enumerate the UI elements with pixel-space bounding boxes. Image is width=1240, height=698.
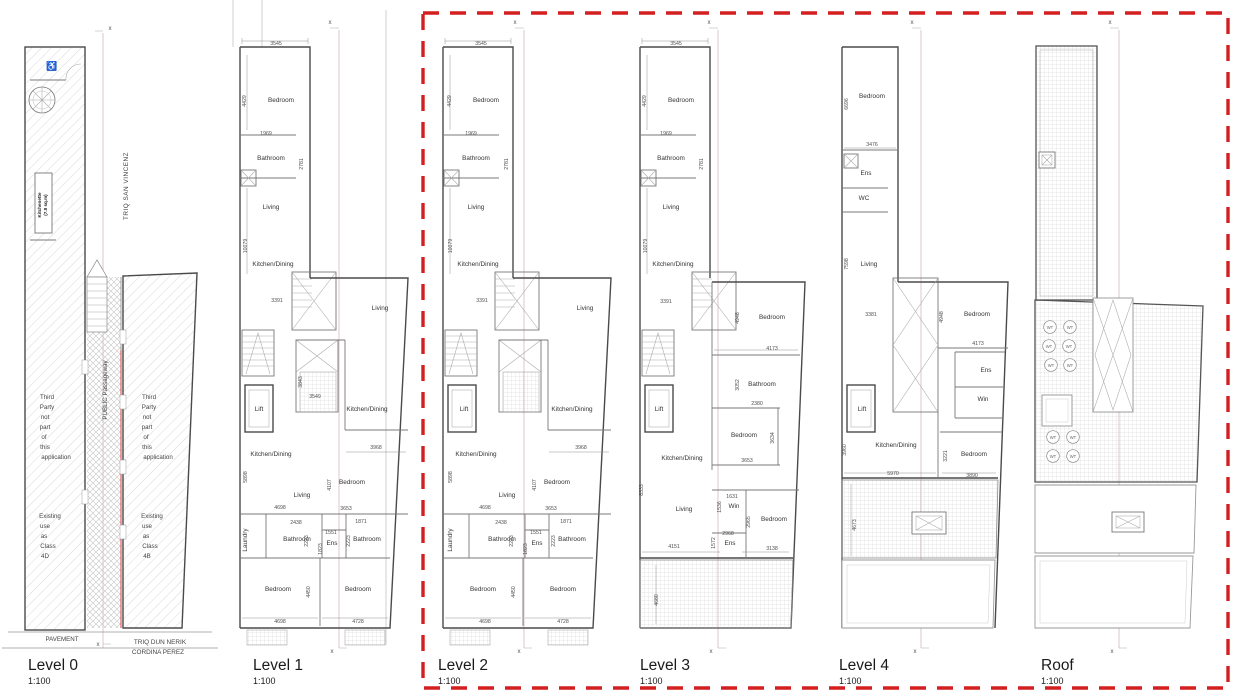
room-label: Bedroom (759, 314, 785, 321)
dimension-label: 3391 (476, 298, 488, 304)
dimension-label: application (143, 454, 173, 461)
dimension-label: not (41, 414, 50, 421)
plan-scale-text: 1:100 (253, 676, 303, 686)
drawing-canvas: x♿Kitchenette(7.8 sq.m)TRIQ SAN VINCENZT… (0, 0, 1240, 698)
dimension-label: part (142, 424, 153, 431)
dimension-label: 2223 (551, 535, 557, 547)
room-label: Kitchen/Dining (652, 261, 694, 268)
dimension-label: 3890 (966, 473, 978, 479)
room-label: Bedroom (859, 93, 885, 100)
plan-scale-text: 1:100 (28, 676, 78, 686)
room-label: Bedroom (961, 451, 987, 458)
room-label: Ens (860, 170, 871, 177)
room-label: Living (468, 204, 485, 211)
dimension-label: 2223 (304, 535, 310, 547)
dimension-label: 4429 (242, 95, 248, 107)
plan-title-text: Roof (1041, 657, 1074, 675)
dimension-label: 1871 (560, 519, 572, 525)
dimension-label: 4450 (306, 586, 312, 598)
dimension-label: 2781 (699, 158, 705, 170)
dimension-label: this (142, 444, 152, 451)
section-marker: x (913, 648, 917, 655)
room-label: WC (859, 195, 870, 202)
level-0-plan: x♿Kitchenette(7.8 sq.m)TRIQ SAN VINCENZT… (2, 25, 218, 656)
dimension-label: 5898 (243, 471, 249, 483)
plan-title-text: Level 0 (28, 657, 78, 675)
plan-scale-text: 1:100 (640, 676, 690, 686)
dimension-label: 4151 (668, 544, 680, 550)
room-label: Bathroom (657, 155, 685, 162)
plan-title-text: Level 2 (438, 657, 488, 675)
dimension-label: 4698 (274, 505, 286, 511)
dimension-label: 3843 (298, 376, 304, 388)
room-label: Laundry (447, 528, 454, 552)
room-label: Living (499, 492, 516, 499)
dimension-label: PAVEMENT (45, 636, 78, 643)
dimension-label: 10079 (448, 239, 454, 254)
room-label: Bathroom (462, 155, 490, 162)
dimension-label: Existing (141, 513, 163, 520)
level-1-title: Level 1 1:100 (253, 657, 303, 686)
dimension-label: 3221 (943, 450, 949, 462)
section-marker: x (96, 641, 100, 648)
level-4-plan: x6696Bedroom3476EnsWC7598Living33814948B… (842, 19, 1008, 655)
dimension-label: 10079 (243, 239, 249, 254)
plan-title-text: Level 4 (839, 657, 889, 675)
dimension-label: 1631 (726, 494, 738, 500)
water-tank-label: WT (1050, 435, 1057, 440)
room-label: Kitchen/Dining (252, 261, 294, 268)
dimension-label: 7598 (844, 258, 850, 270)
dimension-label: of (41, 434, 46, 441)
room-label: Bedroom (550, 586, 576, 593)
dimension-label: 4173 (766, 346, 778, 352)
dimension-label: use (142, 523, 153, 530)
room-label: Bathroom (257, 155, 285, 162)
room-label: Bedroom (544, 479, 570, 486)
dimension-label: 1572 (711, 537, 717, 549)
room-label: Living (577, 305, 594, 312)
water-tank-label: WT (1067, 363, 1074, 368)
street-name: CORDINA PEREZ (132, 649, 184, 656)
dimension-label: 4B (143, 553, 151, 560)
section-marker: x (108, 25, 112, 32)
dimension-label: 2438 (495, 520, 507, 526)
level-2-title: Level 2 1:100 (438, 657, 488, 686)
dimension-label: Existing (39, 513, 61, 520)
dimension-label: 3968 (575, 445, 587, 451)
dimension-label: 3545 (670, 41, 682, 47)
dimension-label: 5970 (887, 471, 899, 477)
dimension-label: 3052 (735, 379, 741, 391)
dimension-label: 3391 (271, 298, 283, 304)
dimension-label: 5898 (448, 471, 454, 483)
level-3-title: Level 3 1:100 (640, 657, 690, 686)
dimension-label: 4728 (352, 619, 364, 625)
section-marker: x (910, 19, 914, 26)
dimension-label: 1969 (660, 131, 672, 137)
room-label: Kitchen/Dining (455, 451, 497, 458)
dimension-label: 1551 (325, 530, 337, 536)
dimension-label: part (40, 424, 51, 431)
dimension-label: 4698 (274, 619, 286, 625)
dimension-label: 6696 (844, 98, 850, 110)
section-marker: x (328, 19, 332, 26)
dimension-label: Class (142, 543, 157, 550)
accessible-icon: ♿ (46, 60, 57, 71)
dimension-label: use (40, 523, 51, 530)
level-2-plan: x35454429Bedroom1969Bathroom2781Living10… (443, 19, 611, 655)
room-label: Bedroom (473, 97, 499, 104)
dimension-label: 1823 (523, 543, 529, 555)
room-label: Living (294, 492, 311, 499)
dimension-label: Class (40, 543, 55, 550)
dimension-label: 3653 (741, 458, 753, 464)
section-marker: x (709, 648, 713, 655)
dimension-label: 3968 (370, 445, 382, 451)
room-label: Lift (655, 406, 664, 413)
level-0-title: Level 0 1:100 (28, 657, 78, 686)
dimension-label: 3381 (865, 312, 877, 318)
dimension-label: 3653 (340, 506, 352, 512)
section-marker: x (330, 648, 334, 655)
dimension-label: 4107 (327, 479, 333, 491)
dimension-label: 4728 (557, 619, 569, 625)
dimension-label: 4680 (654, 594, 660, 606)
dimension-label: as (41, 533, 48, 540)
dimension-label: 3391 (660, 299, 672, 305)
room-label: Lift (460, 406, 469, 413)
dimension-label: Party (142, 404, 157, 411)
dimension-label: 1969 (465, 131, 477, 137)
room-label: Kitchen/Dining (457, 261, 499, 268)
dimension-label: of (143, 434, 148, 441)
room-label: Lift (858, 406, 867, 413)
room-label: Living (372, 305, 389, 312)
dimension-label: 2968 (722, 531, 734, 537)
dimension-label: Party (40, 404, 55, 411)
dimension-label: 4173 (972, 341, 984, 347)
roof-title: Roof 1:100 (1041, 657, 1074, 686)
section-marker: x (1108, 19, 1112, 26)
plan-scale-text: 1:100 (839, 676, 889, 686)
room-label: Lift (255, 406, 264, 413)
dimension-label: 2438 (290, 520, 302, 526)
plan-title-text: Level 3 (640, 657, 690, 675)
water-tank-label: WT (1067, 325, 1074, 330)
room-label: Bedroom (761, 516, 787, 523)
dimension-label: 4107 (532, 479, 538, 491)
dimension-label: 3138 (766, 546, 778, 552)
room-label: Laundry (242, 528, 249, 552)
dimension-label: 3653 (545, 506, 557, 512)
dimension-label: (7.8 sq.m) (43, 194, 48, 216)
room-label: Bedroom (964, 311, 990, 318)
dimension-label: 1969 (260, 131, 272, 137)
water-tank-label: WT (1070, 435, 1077, 440)
level-3-plan: x35454429Bedroom1969Bathroom2781Living10… (639, 19, 805, 655)
dimension-label: 2781 (299, 158, 305, 170)
water-tank-label: WT (1050, 454, 1057, 459)
section-marker: x (513, 19, 517, 26)
room-label: Bedroom (268, 97, 294, 104)
room-label: Bathroom (353, 536, 381, 543)
dimension-label: 2223 (509, 535, 515, 547)
dimension-label: 1551 (530, 530, 542, 536)
room-label: Kitchen/Dining (346, 406, 388, 413)
room-label: Bedroom (339, 479, 365, 486)
dimension-label: 3634 (770, 432, 776, 444)
room-label: Bathroom (748, 381, 776, 388)
room-label: Bathroom (558, 536, 586, 543)
room-label: Living (263, 204, 280, 211)
section-marker: x (517, 648, 521, 655)
level-4-title: Level 4 1:100 (839, 657, 889, 686)
dimension-label: 3545 (475, 41, 487, 47)
room-label: Ens (531, 540, 542, 547)
dimension-label: 2781 (504, 158, 510, 170)
water-tank-label: WT (1070, 454, 1077, 459)
room-label: Living (861, 261, 878, 268)
room-label: Kitchen/Dining (250, 451, 292, 458)
room-label: Bedroom (345, 586, 371, 593)
dimension-label: 4948 (735, 312, 741, 324)
room-label: Ens (724, 540, 735, 547)
dimension-label: Third (142, 394, 157, 401)
dimension-label: PUBLIC Passageway (102, 360, 109, 420)
dimension-label: 3545 (270, 41, 282, 47)
dimension-label: application (41, 454, 71, 461)
plan-scale-text: 1:100 (1041, 676, 1074, 686)
room-label: Win (977, 396, 988, 403)
room-label: Bedroom (470, 586, 496, 593)
water-tank-label: WT (1047, 325, 1054, 330)
dimension-label: 10079 (643, 239, 649, 254)
dimension-label: 8333 (639, 484, 645, 496)
room-label: Ens (980, 367, 991, 374)
dimension-label: as (143, 533, 150, 540)
dimension-label: 4673 (852, 519, 858, 531)
dimension-label: 2223 (346, 535, 352, 547)
dimension-label: 1536 (717, 501, 723, 513)
water-tank-label: WT (1066, 344, 1073, 349)
room-label: Living (676, 506, 693, 513)
dimension-label: 4698 (479, 505, 491, 511)
room-label: Bedroom (731, 432, 757, 439)
room-label: Bedroom (265, 586, 291, 593)
dimension-label: 1823 (318, 543, 324, 555)
room-label: Bedroom (668, 97, 694, 104)
section-marker: x (707, 19, 711, 26)
room-label: Kitchen/Dining (661, 455, 703, 462)
street-name: TRIQ DUN NERIK (134, 639, 187, 646)
dimension-label: 3476 (866, 142, 878, 148)
dimension-label: 3960 (842, 444, 848, 456)
room-label: Kitchen/Dining (875, 442, 917, 449)
plan-scale-text: 1:100 (438, 676, 488, 686)
dimension-label: 2380 (751, 401, 763, 407)
water-tank-label: WT (1046, 344, 1053, 349)
water-tank-label: WT (1048, 363, 1055, 368)
dimension-label: Kitchenette (37, 192, 42, 217)
street-name: TRIQ SAN VINCENZ (123, 152, 130, 220)
dimension-label: Third (40, 394, 55, 401)
room-label: Ens (326, 540, 337, 547)
section-marker: x (1110, 648, 1114, 655)
dimension-label: 1871 (355, 519, 367, 525)
dimension-label: 4429 (642, 95, 648, 107)
dimension-label: 4948 (939, 311, 945, 323)
dimension-label: this (40, 444, 50, 451)
dimension-label: 4429 (447, 95, 453, 107)
dimension-label: not (143, 414, 152, 421)
dimension-label: 4450 (511, 586, 517, 598)
dimension-label: 4698 (479, 619, 491, 625)
dimension-label: 2965 (746, 516, 752, 528)
room-label: Kitchen/Dining (551, 406, 593, 413)
room-label: Win (728, 503, 739, 510)
dimension-label: 4D (41, 553, 49, 560)
room-label: Living (663, 204, 680, 211)
dimension-label: 3549 (309, 394, 321, 400)
plan-title-text: Level 1 (253, 657, 303, 675)
level-1-plan: x35454429Bedroom1969Bathroom2781Living10… (240, 19, 408, 655)
